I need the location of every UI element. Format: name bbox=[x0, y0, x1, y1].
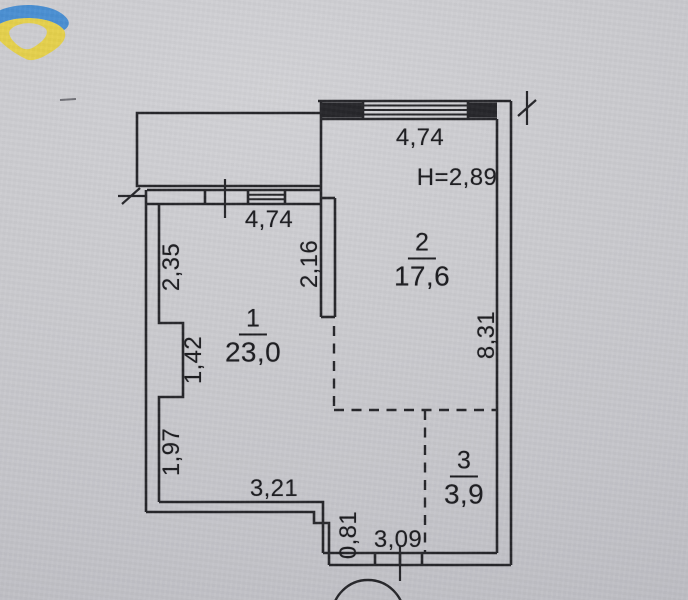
room-3-number: 3 bbox=[450, 447, 478, 477]
dim-room1-bottom: 3,21 bbox=[250, 477, 298, 501]
room-1-area: 23,0 bbox=[225, 338, 281, 369]
dim-room2-left-wall: 2,16 bbox=[298, 240, 322, 288]
room-3-area: 3,9 bbox=[444, 480, 484, 511]
room-2-number: 2 bbox=[408, 229, 436, 259]
room-label-1: 1 23,0 bbox=[225, 305, 281, 368]
room-1-number: 1 bbox=[239, 305, 267, 335]
dim-room2-window-width: 4,74 bbox=[396, 126, 444, 150]
dim-room1-window-width: 4,74 bbox=[245, 208, 293, 232]
floor-plan-photo: 4,74 H=2,89 4,74 2,35 2,16 1,42 1,97 3,2… bbox=[0, 0, 688, 600]
dim-room3-bottom: 3,09 bbox=[374, 528, 422, 552]
dim-right-wall: 8,31 bbox=[475, 311, 499, 359]
dim-room1-left-lower: 1,97 bbox=[160, 428, 184, 476]
room-2-area: 17,6 bbox=[394, 262, 450, 293]
dim-ceiling-height: H=2,89 bbox=[417, 166, 497, 190]
room-label-2: 2 17,6 bbox=[394, 229, 450, 292]
pen-mark bbox=[60, 99, 76, 100]
room-label-3: 3 3,9 bbox=[444, 447, 484, 510]
dim-room1-left-niche: 1,42 bbox=[182, 336, 206, 384]
dim-entry-step: 0,81 bbox=[337, 511, 361, 559]
dim-room1-left-upper: 2,35 bbox=[160, 243, 184, 291]
circle-mark bbox=[332, 580, 404, 600]
